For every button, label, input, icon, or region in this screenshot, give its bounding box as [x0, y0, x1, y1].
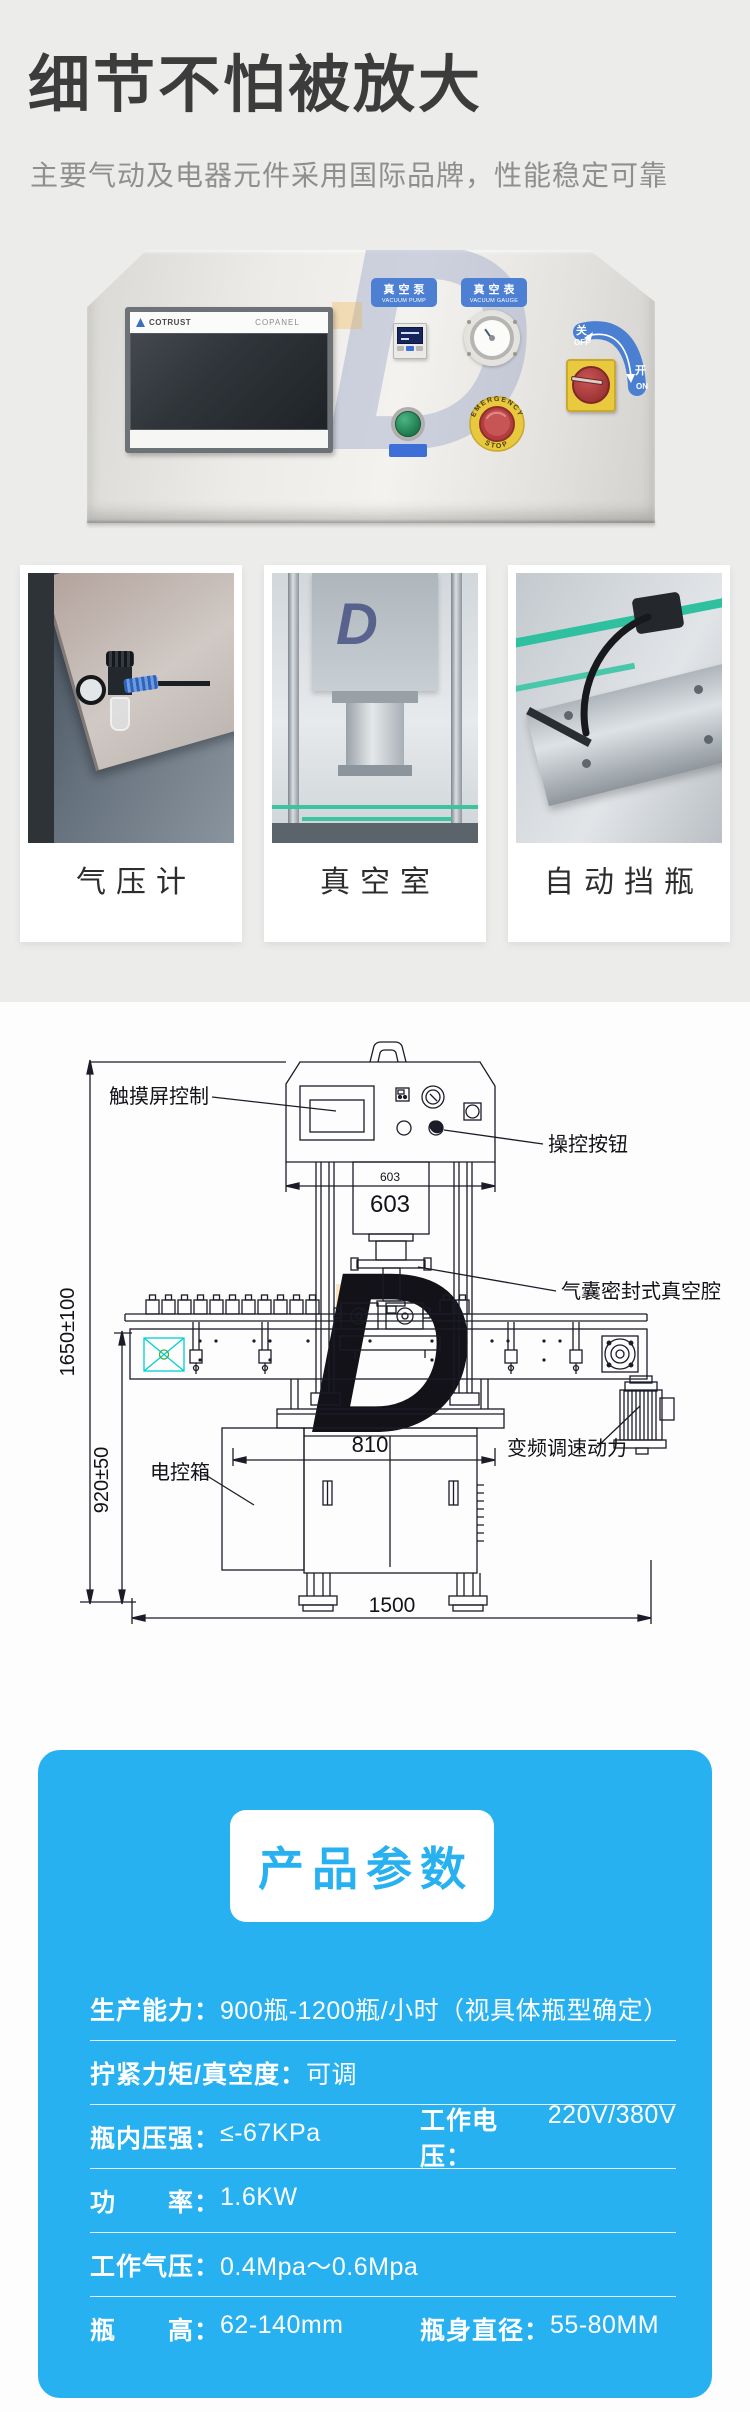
dim-1650: 1650±100	[57, 1060, 286, 1604]
param-value: 1.6KW	[220, 2183, 298, 2219]
vacuum-gauge-cn: 真空表	[470, 281, 519, 297]
idler-end-marker	[144, 1338, 184, 1371]
hmi-touchscreen: COTRUST COPANEL	[125, 307, 333, 453]
param-row-air-pressure: 工作气压： 0.4Mpa～0.6Mpa	[90, 2233, 676, 2297]
bottle-stop-photo	[516, 573, 722, 843]
cotrust-logo-icon	[136, 318, 145, 327]
dim-total-width: 1500	[369, 1594, 416, 1617]
machine-head	[286, 1042, 495, 1162]
page-title: 细节不怕被放大	[28, 34, 483, 124]
param-row-bottle-size: 瓶 高： 62-140mm 瓶身直径： 55-80MM	[90, 2297, 676, 2361]
vacuum-gauge-label: 真空表 VACUUM GAUGE	[461, 278, 527, 307]
param-label: 瓶 高：	[90, 2311, 220, 2347]
parameters-rows: 生产能力： 900瓶-1200瓶/小时（视具体瓶型确定） 拧紧力矩/真空度： 可…	[38, 1977, 712, 2361]
hmi-brand: COTRUST	[149, 318, 191, 327]
param-label: 瓶身直径：	[420, 2311, 550, 2347]
hmi-model: COPANEL	[255, 318, 300, 327]
dim-cabinet-width: 810	[352, 1432, 389, 1457]
start-button-base	[391, 407, 425, 441]
vacuum-pump-en: VACUUM PUMP	[382, 298, 426, 304]
card-caption: 自动挡瓶	[508, 857, 730, 901]
digital-screen	[397, 327, 423, 344]
control-panel-photo: D COTRUST COPANEL 真空泵 VACUUM PUMP 真空表 VA…	[87, 250, 655, 523]
pressure-gauge-photo	[28, 573, 234, 843]
hmi-footer	[130, 430, 328, 448]
page-subtitle: 主要气动及电器元件采用国际品牌，性能稳定可靠	[30, 154, 668, 194]
vacuum-gauge-en: VACUUM GAUGE	[470, 298, 518, 304]
digital-buttons	[394, 346, 426, 351]
gauge-face	[470, 316, 514, 360]
param-value: 55-80MM	[550, 2311, 659, 2347]
param-row-power: 功 率： 1.6KW	[90, 2169, 676, 2233]
param-value: 可调	[306, 2055, 357, 2091]
dim-603: 603 603	[286, 1162, 495, 1218]
on-cn: 开	[635, 364, 646, 377]
dim-head-width: 603	[370, 1191, 410, 1218]
param-row-pressure-voltage: 瓶内压强： ≤-67KPa 工作电压： 220V/380V	[90, 2105, 676, 2169]
param-value: 220V/380V	[548, 2101, 676, 2173]
dim-head-width-small: 603	[380, 1170, 400, 1184]
green-start-button	[395, 411, 421, 437]
off-cn: 关	[576, 323, 587, 337]
digital-pressure-display	[393, 323, 427, 359]
vacuum-chamber-photo: D	[272, 573, 478, 843]
emergency-stop-button: EMERGENCY STOP	[465, 392, 529, 456]
watermark-square	[332, 302, 362, 329]
hmi-screen	[130, 333, 328, 430]
diagram-watermark: D	[308, 1224, 474, 1481]
svg-text:D: D	[308, 1224, 474, 1481]
label-vacuum-chamber: 气囊密封式真空腔	[561, 1280, 721, 1303]
param-label: 生产能力：	[90, 1991, 220, 2027]
feature-card-vacuum-chamber: D 真空室	[264, 565, 486, 942]
param-label: 工作气压：	[90, 2247, 220, 2283]
vacuum-gauge-dial	[464, 310, 520, 366]
param-value: 900瓶-1200瓶/小时（视具体瓶型确定）	[220, 1991, 669, 2027]
dim-920: 920±50	[91, 1331, 132, 1604]
label-vfd-power: 变频调速动力	[507, 1437, 627, 1460]
on-off-arc-label: 关 OFF 开 ON	[573, 317, 649, 401]
param-label: 拧紧力矩/真空度：	[90, 2055, 306, 2091]
parameters-title: 产品参数	[250, 1833, 474, 1899]
label-electric-box: 电控箱	[150, 1461, 210, 1484]
gauge-hub	[489, 335, 495, 341]
param-value: ≤-67KPa	[220, 2119, 321, 2155]
dim-total-height: 1650±100	[57, 1288, 79, 1377]
sensor-cable	[516, 573, 722, 843]
parameters-title-box: 产品参数	[230, 1810, 494, 1922]
drive-end-flange	[602, 1336, 638, 1372]
param-value: 62-140mm	[220, 2311, 344, 2347]
param-label: 工作电压：	[420, 2101, 548, 2173]
on-en: ON	[636, 382, 648, 391]
param-label: 瓶内压强：	[90, 2119, 220, 2155]
panel-ground-shadow	[87, 521, 655, 528]
dim-1500: 1500	[132, 1560, 651, 1624]
label-control-buttons: 操控按钮	[548, 1133, 628, 1156]
vacuum-pump-cn: 真空泵	[380, 281, 429, 297]
feature-card-bottle-stop: 自动挡瓶	[508, 565, 730, 942]
param-value: 0.4Mpa～0.6Mpa	[220, 2247, 418, 2283]
product-page: 细节不怕被放大 主要气动及电器元件采用国际品牌，性能稳定可靠 D COTRUST…	[0, 0, 750, 2412]
param-row-torque: 拧紧力矩/真空度： 可调	[90, 2041, 676, 2105]
param-label: 功 率：	[90, 2183, 220, 2219]
param-row-capacity: 生产能力： 900瓶-1200瓶/小时（视具体瓶型确定）	[90, 1977, 676, 2041]
label-touch-screen: 触摸屏控制	[109, 1085, 209, 1108]
machine-dimension-diagram: D	[40, 1000, 750, 1730]
dim-conveyor-height: 920±50	[91, 1447, 113, 1514]
start-button-label	[389, 444, 427, 457]
feature-card-pressure-gauge: 气压计	[20, 565, 242, 942]
product-parameters-card: 产品参数 生产能力： 900瓶-1200瓶/小时（视具体瓶型确定） 拧紧力矩/真…	[38, 1750, 712, 2398]
vacuum-pump-label: 真空泵 VACUUM PUMP	[371, 278, 437, 307]
card-caption: 气压计	[20, 857, 242, 901]
card-caption: 真空室	[264, 857, 486, 901]
hmi-header: COTRUST COPANEL	[130, 312, 328, 333]
off-en: OFF	[574, 338, 590, 347]
